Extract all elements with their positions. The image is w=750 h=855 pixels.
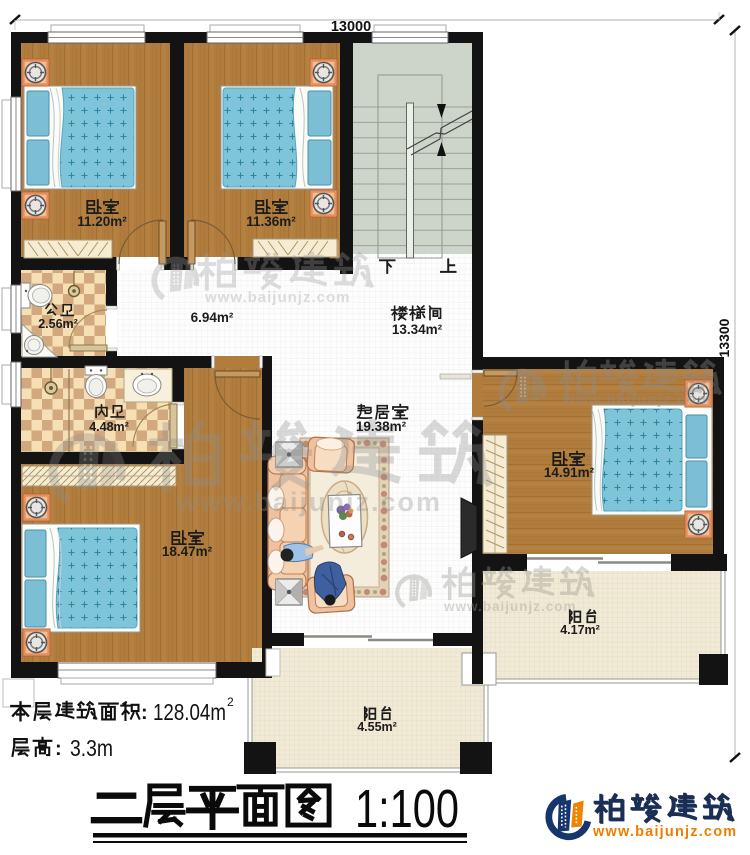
svg-text:19.38m²: 19.38m² [356,419,407,434]
svg-text:www.baijunjz.com: www.baijunjz.com [562,391,712,408]
svg-text:11.36m²: 11.36m² [246,214,296,229]
svg-text:11.20m²: 11.20m² [77,214,127,229]
svg-text::: : [141,702,148,724]
svg-text:128.04m: 128.04m [153,699,226,725]
svg-text:4.55m²: 4.55m² [357,720,397,734]
svg-text:13.34m²: 13.34m² [392,322,443,337]
svg-text:4.48m²: 4.48m² [89,420,129,434]
svg-text:4.17m²: 4.17m² [560,623,600,637]
svg-text:13000: 13000 [331,19,371,35]
svg-text:1:100: 1:100 [355,779,459,839]
svg-text::: : [55,738,62,760]
svg-text:www.baijunjz.com: www.baijunjz.com [443,599,577,614]
svg-text:www.baijunjz.com: www.baijunjz.com [176,487,442,517]
svg-text:6.94m²: 6.94m² [191,310,234,325]
svg-text:13300: 13300 [716,318,732,357]
svg-text:www.baijunjz.com: www.baijunjz.com [204,289,350,306]
svg-text:18.47m²: 18.47m² [162,544,213,559]
svg-text:14.91m²: 14.91m² [544,465,595,480]
svg-text:2.56m²: 2.56m² [38,317,78,331]
svg-text:2: 2 [227,695,234,709]
svg-text:3.3m: 3.3m [70,735,113,761]
svg-text:www.baijunjz.com: www.baijunjz.com [592,824,737,840]
